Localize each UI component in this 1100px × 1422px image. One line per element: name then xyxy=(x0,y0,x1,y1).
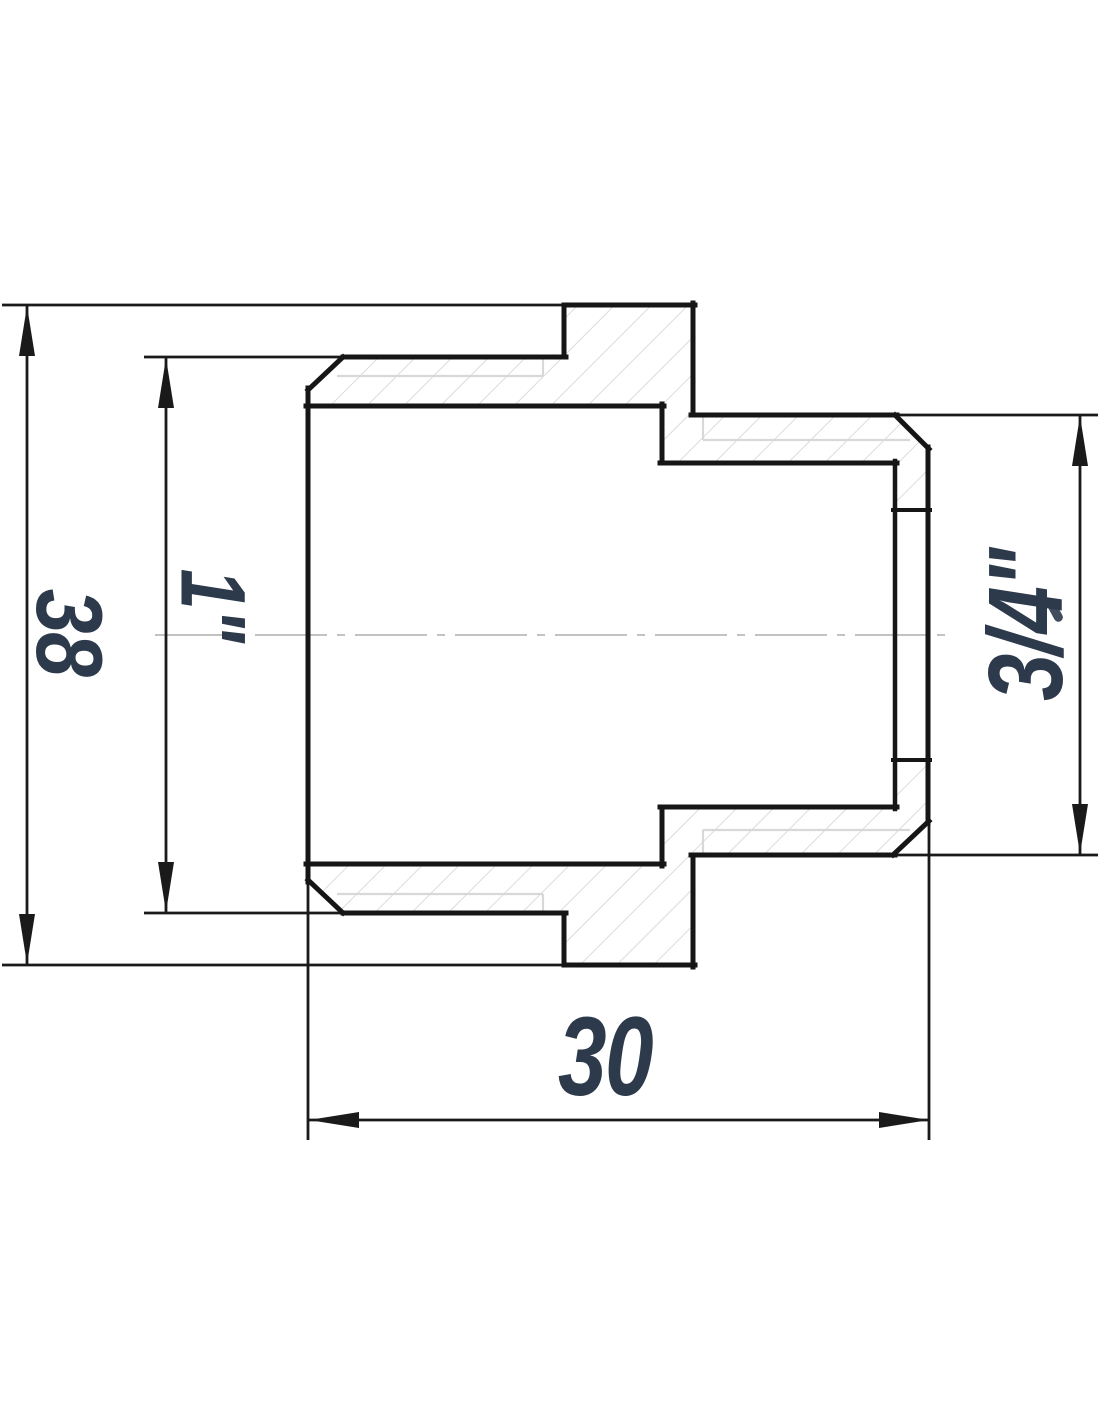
dim-label-34: 3/4" xyxy=(967,546,1085,701)
dim-label-30: 30 xyxy=(558,995,653,1120)
technical-drawing-page: 38 1" 3/4" 30 xyxy=(0,0,1100,1422)
dim-label-1in: 1" xyxy=(162,569,265,645)
dim-label-38: 38 xyxy=(16,589,121,677)
fitting-section-drawing: 38 1" 3/4" 30 xyxy=(0,0,1100,1422)
